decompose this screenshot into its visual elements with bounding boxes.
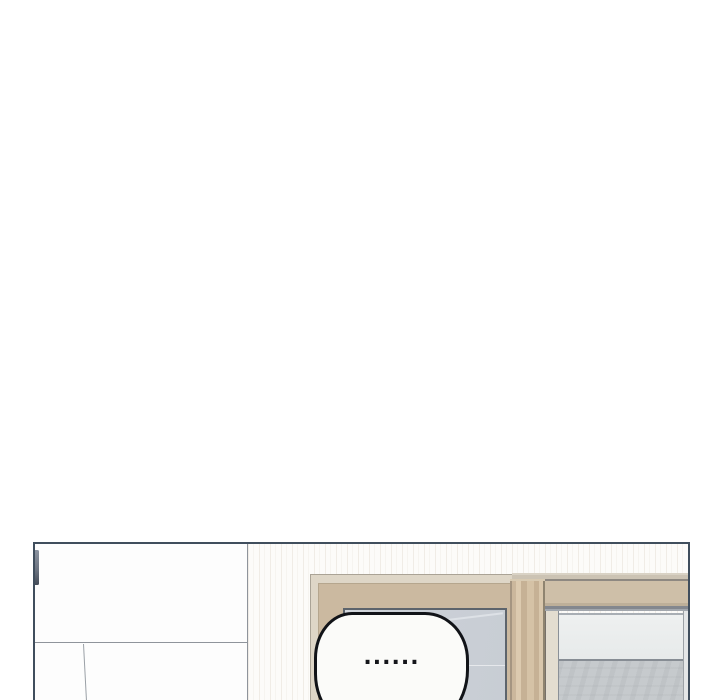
window-stile <box>545 611 559 700</box>
door-hinge-mark <box>34 550 39 585</box>
speech-bubble: ...... <box>314 612 469 700</box>
cabinet-horizontal-line <box>35 642 248 643</box>
window-glass-upper <box>559 613 684 659</box>
cabinet-area <box>35 544 248 700</box>
comic-panel: ...... <box>33 542 690 700</box>
window-right-edge-strip <box>683 611 688 700</box>
window-post <box>510 579 545 700</box>
window-glass-lower <box>559 661 684 700</box>
page-background: ...... <box>0 0 720 700</box>
speech-bubble-text: ...... <box>317 645 466 671</box>
